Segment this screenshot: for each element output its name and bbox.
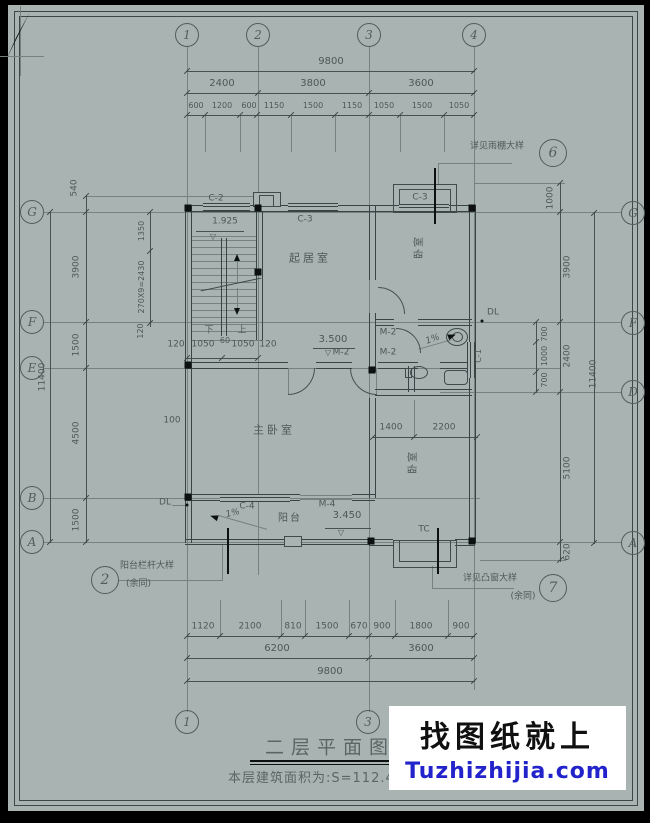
- dim-top-mid: 3800: [300, 79, 325, 89]
- grid-bubble-F-left: F: [20, 310, 44, 334]
- level-stair: 1.925: [212, 218, 238, 227]
- dim-left-offset: 540: [71, 179, 80, 196]
- grid-bubble-1-bottom: 1: [175, 710, 199, 734]
- dim-bottom-fine: 1500: [316, 623, 339, 632]
- dim-bottom-overall: 9800: [317, 667, 342, 677]
- column: [185, 362, 192, 369]
- section-cut-line: [437, 528, 439, 574]
- column: [185, 205, 192, 212]
- level-balcony: 3.450: [333, 511, 362, 521]
- dim-top-overall: 9800: [318, 57, 343, 67]
- dim-line: [187, 93, 475, 94]
- dim-stair: 1050: [192, 341, 215, 350]
- dim-line: [50, 212, 51, 543]
- dim-right-sub: 700: [541, 326, 549, 341]
- grid-bubble-A-right: A: [621, 531, 645, 555]
- column: [469, 205, 476, 212]
- dim-line: [187, 658, 475, 659]
- balcony-rail-post: [284, 536, 302, 547]
- tag-m2: M-2: [380, 349, 397, 358]
- dim-line: [187, 71, 475, 72]
- dim-left-tier: 3900: [73, 256, 82, 279]
- drawing-sheet: 1 2 3 4 1 3 4 G F E B A G F D A 9800 240…: [0, 0, 650, 823]
- grid-line-G: [43, 212, 622, 213]
- note-rail-sub: (余同): [126, 580, 151, 589]
- bay-window-tc-inner: [399, 540, 451, 562]
- dim-inner-100: 100: [163, 417, 180, 426]
- dim-inner-mid: 2200: [433, 424, 456, 433]
- dim-right-tier: 5100: [564, 457, 573, 480]
- stair-up-arrow: [234, 254, 240, 261]
- dim-left-overall: 11400: [39, 363, 48, 392]
- dim-right-sub: 700: [541, 372, 549, 387]
- dim-top-mid: 2400: [209, 79, 234, 89]
- dim-top-fine: 600: [241, 102, 256, 110]
- wall-segment: [475, 205, 476, 543]
- ref-bubble-rail: 2: [91, 566, 119, 594]
- dim-right-tier: 3900: [564, 256, 573, 279]
- dim-bottom-mid: 3600: [408, 644, 433, 654]
- dim-line: [86, 196, 87, 543]
- drawing-title: 二层平面图: [265, 739, 395, 758]
- dim-line: [187, 636, 475, 637]
- dim-bottom-fine: 810: [284, 623, 301, 632]
- tag-m2: M-2: [333, 349, 350, 358]
- toilet-tank: [405, 368, 412, 378]
- dim-top-fine: 1150: [342, 102, 362, 110]
- level-marker-icon: ▽: [338, 529, 344, 537]
- dim-stair: 1050: [232, 341, 255, 350]
- dim-top-fine: 1050: [449, 102, 469, 110]
- dim-right-sub: 1000: [541, 346, 549, 366]
- dim-line: [187, 115, 475, 116]
- tag-c3-mid: C-3: [297, 216, 312, 225]
- level-floor: 3.500: [319, 335, 348, 345]
- level-marker-icon: ▽: [325, 349, 331, 357]
- tag-m2: M-2: [380, 329, 397, 338]
- column: [469, 538, 476, 545]
- dim-top-fine: 1050: [374, 102, 394, 110]
- dim-line: [373, 437, 478, 438]
- dim-bottom-fine: 1120: [192, 623, 215, 632]
- dim-left-tier: 1500: [73, 334, 82, 357]
- north-arrow-line: [20, 6, 21, 76]
- grid-bubble-2-top: 2: [246, 23, 270, 47]
- window-c4: [220, 494, 290, 502]
- dim-stair: 120: [259, 341, 276, 350]
- wall-segment: [185, 205, 186, 543]
- grid-line-1: [187, 46, 188, 712]
- note-bay: 详见凸窗大样: [463, 575, 517, 584]
- grid-bubble-3-top: 3: [357, 23, 381, 47]
- dim-top-fine: 1150: [264, 102, 284, 110]
- grid-bubble-1-top: 1: [175, 23, 199, 47]
- column: [369, 367, 376, 374]
- dim-bottom-fine: 670: [350, 623, 367, 632]
- bathtub-fixture: [444, 370, 468, 385]
- section-cut-line: [434, 168, 436, 224]
- dim-line: [187, 681, 475, 682]
- dim-line: [536, 322, 537, 393]
- column: [185, 494, 192, 501]
- tag-c4: C-4: [239, 503, 254, 512]
- note-bay-sub: (余同): [510, 593, 535, 602]
- dim-stair: 60: [220, 337, 230, 345]
- dim-inner-mid: 1400: [380, 424, 403, 433]
- column: [255, 269, 262, 276]
- dim-line: [560, 183, 561, 562]
- dim-bottom-mid: 6200: [264, 644, 289, 654]
- dim-left-inner: 120: [137, 323, 145, 338]
- window-c3-mid: [288, 203, 338, 211]
- grid-line-A: [43, 542, 622, 543]
- stair-up-label: 上: [237, 327, 246, 336]
- dim-bottom-fine: 2100: [239, 623, 262, 632]
- room-label-living: 起居室: [289, 253, 331, 264]
- north-arrow-line: [0, 56, 44, 57]
- column: [368, 538, 375, 545]
- dim-right-overall: 11400: [590, 360, 599, 389]
- dim-bottom-fine: 900: [373, 623, 390, 632]
- grid-bubble-3-bottom: 3: [356, 710, 380, 734]
- ref-bubble-canopy: 6: [539, 139, 567, 167]
- note-rail: 阳台栏杆大样: [120, 562, 174, 571]
- dim-left-tier: 4500: [73, 422, 82, 445]
- dim-bottom-fine: 900: [452, 623, 469, 632]
- tag-tc: TC: [418, 526, 429, 535]
- section-cut-line: [227, 528, 229, 574]
- dim-top-fine: 1500: [303, 102, 323, 110]
- wall-segment: [191, 205, 192, 543]
- dim-top-fine: 1500: [412, 102, 432, 110]
- grid-bubble-D-right: D: [621, 380, 645, 404]
- grid-bubble-A-left: A: [20, 530, 44, 554]
- dim-right-offset: 1000: [547, 187, 556, 210]
- watermark-url: Tuzhizhijia.com: [405, 759, 610, 784]
- dim-right-tier: 2400: [564, 345, 573, 368]
- room-label-bed-ne: 卧室: [415, 235, 425, 259]
- grid-bubble-B-left: B: [20, 486, 44, 510]
- grid-bubble-F-right: F: [621, 311, 645, 335]
- tag-dl: DL: [487, 309, 499, 318]
- dim-top-fine: 600: [188, 102, 203, 110]
- tag-m4: M-4: [319, 501, 336, 510]
- stair-down-arrow: [234, 308, 240, 315]
- stair-down-label: 下: [204, 327, 213, 336]
- grid-bubble-G-right: G: [621, 201, 645, 225]
- tag-c1: C-1: [475, 349, 483, 363]
- room-label-master: 主卧室: [253, 425, 295, 436]
- watermark: 找图纸就上 Tuzhizhijia.com: [389, 706, 626, 790]
- room-label-balcony: 阳台: [278, 514, 302, 524]
- tag-c2: C-2: [208, 195, 223, 204]
- dim-right-bottom: 620: [564, 543, 573, 560]
- dim-line: [150, 212, 151, 327]
- window-c3-ne: [399, 204, 449, 212]
- border-frame-inner: [19, 16, 633, 801]
- dim-stair: 120: [167, 341, 184, 350]
- dim-left-tier: 1500: [73, 509, 82, 532]
- dim-top-fine: 1200: [212, 102, 232, 110]
- grid-bubble-G-left: G: [20, 200, 44, 224]
- room-label-bed-se: 卧室: [409, 450, 419, 474]
- tag-c3-ne: C-3: [412, 194, 427, 203]
- dim-top-mid: 3600: [408, 79, 433, 89]
- watermark-text: 找图纸就上: [420, 712, 595, 756]
- tag-dl: DL: [159, 499, 171, 508]
- toilet-fixture: [410, 366, 428, 379]
- dim-bottom-fine: 1800: [410, 623, 433, 632]
- level-marker-icon: ▽: [210, 233, 216, 241]
- dim-left-inner: 1350: [138, 221, 146, 241]
- ref-bubble-bay: 7: [539, 574, 567, 602]
- note-canopy: 详见雨棚大样: [470, 143, 524, 152]
- grid-bubble-4-top: 4: [462, 23, 486, 47]
- window-c2: [203, 203, 250, 211]
- column: [255, 205, 262, 212]
- dim-left-inner: 270X9=2430: [138, 261, 146, 314]
